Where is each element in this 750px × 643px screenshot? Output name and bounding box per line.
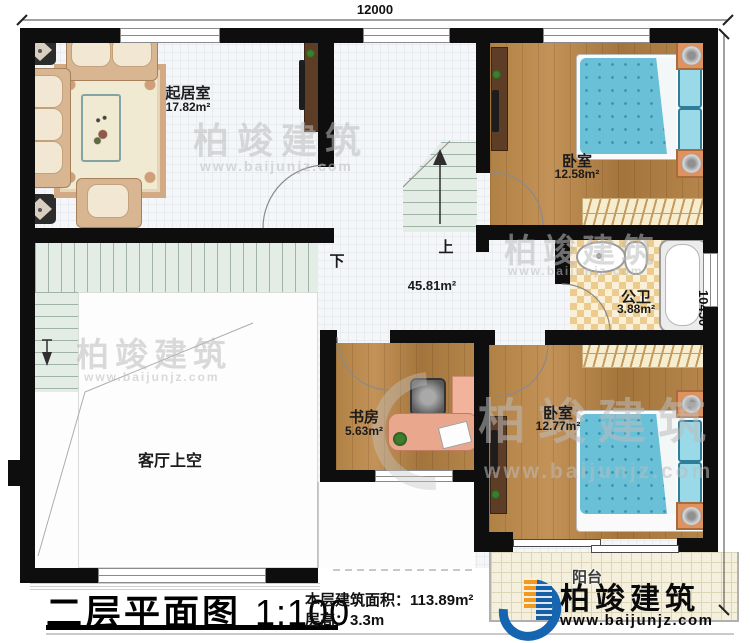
pillow <box>678 64 702 108</box>
wall <box>320 330 336 472</box>
tv-icon <box>299 60 305 110</box>
room-area-bedroom1: 12.58m² <box>555 167 600 181</box>
window <box>98 568 266 583</box>
wall <box>320 470 375 482</box>
window <box>120 28 220 43</box>
sliding-door <box>513 539 601 547</box>
brand-url: www.baijunjz.com <box>560 612 713 629</box>
floor-area-value: 113.89m² <box>410 592 473 609</box>
bedroom1-monitor <box>492 90 499 132</box>
coffee-table <box>81 94 121 162</box>
stairs-down <box>35 292 78 392</box>
pillow <box>678 108 702 152</box>
room-area-study: 5.63m² <box>345 424 383 438</box>
room-area-bath: 3.88m² <box>617 302 655 316</box>
floor-area-note: 本层建筑面积：113.89m² <box>305 589 473 610</box>
window <box>543 28 650 43</box>
wall <box>476 225 718 240</box>
wall <box>20 568 98 583</box>
wall <box>20 28 35 583</box>
bedroom1-wardrobe <box>582 198 705 228</box>
wall <box>474 532 513 552</box>
wall <box>450 28 543 43</box>
wall-pier <box>8 460 20 486</box>
room-area-bedroom2: 12.77m² <box>536 419 581 433</box>
wall <box>703 28 718 253</box>
wall <box>20 228 334 243</box>
bedroom2-monitor <box>491 430 498 472</box>
plant-icon <box>306 49 315 58</box>
title-underline <box>46 625 338 630</box>
sofa-cushion <box>87 184 129 218</box>
dimension-right: 10450 <box>696 290 711 326</box>
wall <box>220 28 363 43</box>
pillow <box>678 420 702 462</box>
sink-icon <box>576 241 626 273</box>
plant-icon <box>492 70 501 79</box>
floor-height-note: 层高：3.3m <box>305 609 384 630</box>
stair-down-label: 下 <box>329 250 344 271</box>
wall <box>545 330 718 345</box>
floor-plan: 12000 10450 起居室 17.82m² 卧室 12.58m² 公卫 3.… <box>0 0 750 643</box>
wall <box>677 538 718 552</box>
wall <box>20 28 120 43</box>
room-area-living: 17.82m² <box>166 100 211 114</box>
void-area <box>78 292 318 568</box>
bathtub-basin <box>665 244 700 326</box>
window <box>363 28 450 43</box>
wall <box>266 568 318 583</box>
plant-icon <box>491 490 500 499</box>
pillow <box>678 462 702 504</box>
stair-up-label: 上 <box>438 236 453 257</box>
toilet-icon <box>624 241 648 275</box>
wall <box>318 43 334 167</box>
hall-area: 45.81m² <box>408 278 456 293</box>
wall <box>476 43 490 173</box>
stairs-landing <box>35 243 318 292</box>
wall <box>476 240 489 252</box>
wall <box>390 330 474 343</box>
brand-logo-building-blue <box>536 584 552 620</box>
sliding-door <box>591 545 679 553</box>
exterior-pocket <box>318 482 475 568</box>
floor-height-label: 层高： <box>305 612 350 629</box>
void-area-left <box>35 392 78 568</box>
brand-logo: 柏竣建筑 www.baijunjz.com <box>496 572 746 636</box>
dimension-top: 12000 <box>357 2 393 17</box>
wall <box>555 240 570 284</box>
floor-height-value: 3.3m <box>350 612 384 629</box>
room-label-void: 客厅上空 <box>138 447 202 471</box>
floor-area-label: 本层建筑面积： <box>305 592 410 609</box>
